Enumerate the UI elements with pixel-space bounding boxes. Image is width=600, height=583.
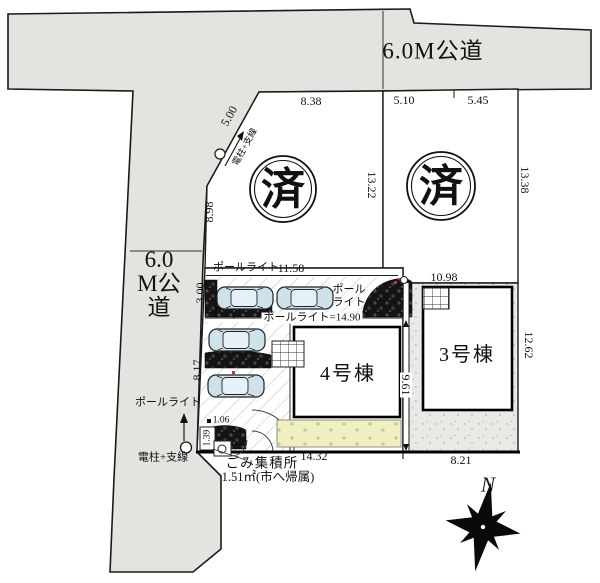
car-icon [208, 375, 264, 397]
dim-lot3-right: 12.62 [523, 332, 535, 359]
dim-corner-h: 1.39 [203, 430, 213, 447]
dim-upper-mid-right: 13.22 [366, 172, 378, 199]
car-icon [217, 287, 273, 309]
plan-drawing [0, 0, 600, 583]
garden-strip [277, 420, 401, 447]
sold-stamp-text: 済 [419, 165, 463, 209]
pole-light-north-label: ポールライト [213, 263, 279, 274]
dim-left-lower: 8.17 [191, 360, 203, 381]
porch-grid-b3 [423, 288, 449, 309]
building-4-label: 4号棟 [320, 364, 376, 384]
dim-left-upper: 8.98 [203, 202, 215, 223]
dim-top-2: 5.10 [394, 94, 415, 106]
porch-grid-b4 [272, 341, 304, 367]
dim-corner-w: 1.06 [213, 416, 230, 426]
dim-bottom-lot4: 14.32 [301, 450, 328, 462]
top-road-label: 6.0M公道 [382, 40, 483, 63]
pole-light-east-label: ポール ライト [333, 283, 366, 308]
red-marker [394, 281, 397, 284]
dim-top-3: 5.45 [468, 94, 489, 106]
dim-top-1: 8.38 [301, 95, 322, 107]
dim-mid-strip: ポールライト=14.90 [262, 313, 363, 324]
pole-light-symbol [401, 277, 408, 284]
left-road-label: 6.0M公道 [137, 248, 181, 320]
north-label: N [481, 475, 495, 496]
pole-light-east-line2: ライト [333, 296, 366, 308]
site-plan: 6.0M公道 6.0M公道 済 済 4号棟 3号棟 8.38 5.10 5.45… [0, 0, 600, 583]
dim-upper-right: 13.38 [519, 167, 531, 194]
dim-bottom-lot3: 8.21 [451, 454, 472, 466]
dim-left-mid: 3.00 [194, 283, 206, 304]
pole-light-sw-label: ポールライト [135, 398, 201, 409]
building-3-label: 3号棟 [439, 345, 495, 365]
red-marker [232, 371, 235, 374]
dim-north-strip: 11.58 [278, 262, 305, 274]
car-icon [277, 287, 333, 309]
garbage-pen [214, 441, 231, 456]
utility-pole-sw-label: 電柱+支線 [138, 453, 188, 464]
garbage-label-line1: ごみ集積所 [226, 456, 299, 470]
sold-stamp-text: 済 [261, 168, 305, 212]
dim-between-lots: 9.61 [400, 373, 412, 398]
garbage-label-line2: 1.51㎡(市へ帰属) [222, 471, 315, 484]
corner-marker [207, 419, 211, 423]
pole-light-east-line1: ポール [333, 283, 366, 295]
lot-gap [404, 283, 409, 452]
planter [205, 351, 271, 368]
dim-lot3-top: 10.98 [431, 271, 458, 283]
car-icon [209, 329, 265, 351]
utility-pole-symbol [215, 149, 225, 159]
